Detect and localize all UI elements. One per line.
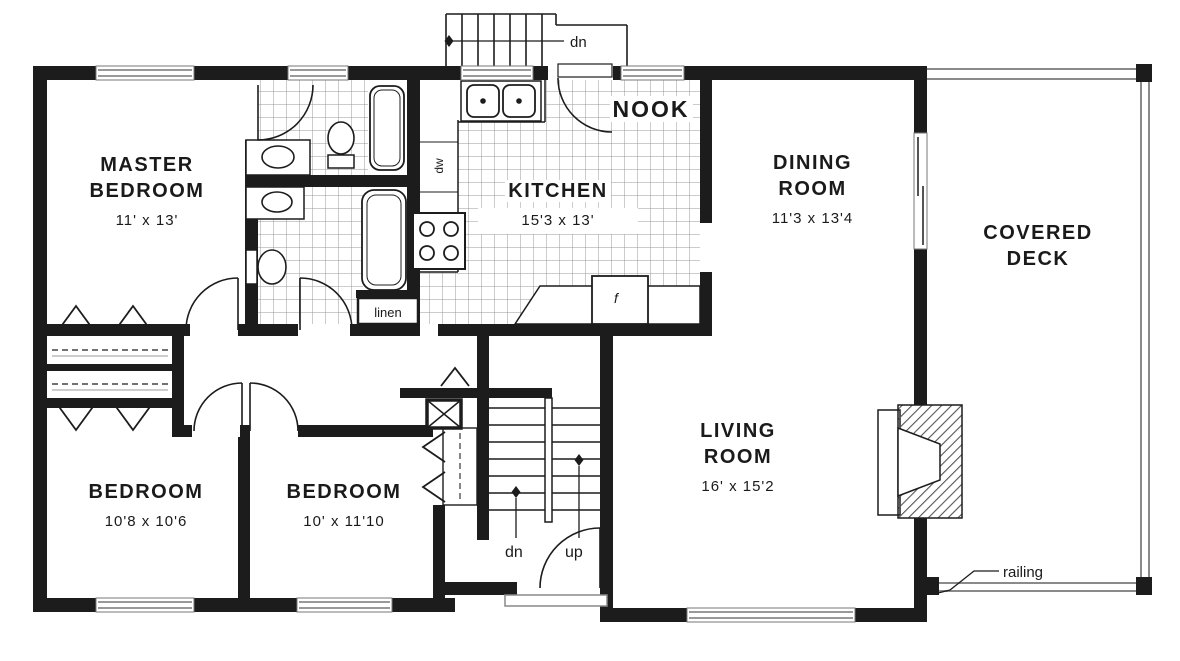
- room-label-bedroom-3: BEDROOM 10' x 11'10: [258, 479, 430, 535]
- bedroom2-door: [194, 383, 242, 431]
- room-label-bedroom-2: BEDROOM 10'8 x 10'6: [60, 479, 232, 535]
- room-name: BEDROOM: [287, 481, 402, 503]
- window: [621, 66, 684, 80]
- room-name: BEDROOM: [89, 481, 204, 503]
- patio-door: [914, 133, 927, 249]
- room-name: MASTER BEDROOM: [90, 154, 205, 202]
- ensuite-tub: [370, 86, 404, 170]
- bifold-door: [441, 368, 469, 386]
- room-size: 10' x 11'10: [258, 509, 430, 535]
- window: [297, 598, 392, 612]
- stairs-down-label: dn: [505, 544, 523, 561]
- room-name: DINING ROOM: [773, 152, 852, 200]
- room-size: 15'3 x 13': [478, 208, 638, 234]
- floor-plan: dn dn up dw f linen railing MASTER BEDRO…: [0, 0, 1180, 661]
- refrigerator: [592, 276, 648, 324]
- exterior-stairs-down-label: dn: [570, 34, 587, 51]
- room-label-master-bedroom: MASTER BEDROOM 11' x 13': [72, 152, 222, 234]
- master-bedroom-door: [186, 278, 238, 330]
- window: [288, 66, 348, 80]
- main-bath-tub: [362, 190, 406, 290]
- stair-divider-rail: [545, 398, 552, 522]
- main-bath-vanity-sink: [246, 187, 304, 219]
- stair-arrow-head: [512, 486, 521, 498]
- chimney: [427, 400, 461, 428]
- ensuite-vanity-sink: [246, 140, 310, 175]
- main-bath-toilet: [246, 250, 286, 284]
- room-label-covered-deck: COVERED DECK: [968, 220, 1108, 272]
- entry-stoop: [505, 595, 607, 606]
- window: [96, 66, 194, 80]
- ensuite-toilet: [328, 122, 354, 168]
- deck-corner-post: [1136, 64, 1152, 82]
- room-label-nook: NOOK: [596, 96, 706, 122]
- stair-arrow-head: [575, 454, 584, 466]
- window: [96, 598, 194, 612]
- floor-plan-linework: dn dn up dw f linen railing: [0, 0, 1180, 661]
- stove: [413, 213, 465, 269]
- room-name: COVERED DECK: [983, 222, 1092, 270]
- stairs-up-label: up: [565, 544, 583, 561]
- dishwasher-label: dw: [432, 158, 446, 174]
- window: [687, 608, 855, 622]
- fireplace: [878, 405, 962, 518]
- room-name: NOOK: [610, 96, 693, 122]
- linen-label: linen: [374, 305, 401, 320]
- deck-corner-post: [1136, 577, 1152, 595]
- kitchen-double-sink: [461, 81, 541, 121]
- room-size: 16' x 15'2: [668, 474, 808, 500]
- room-size: 11' x 13': [72, 208, 222, 234]
- window: [461, 66, 533, 80]
- room-name: LIVING ROOM: [700, 420, 776, 468]
- room-label-kitchen: KITCHEN 15'3 x 13': [478, 178, 638, 234]
- deck-corner-post: [925, 577, 939, 595]
- room-size: 11'3 x 13'4: [745, 206, 880, 232]
- room-label-living-room: LIVING ROOM 16' x 15'2: [668, 418, 808, 500]
- bedroom3-door: [250, 383, 298, 431]
- room-size: 10'8 x 10'6: [60, 509, 232, 535]
- railing-label: railing: [1003, 564, 1043, 581]
- room-label-dining-room: DINING ROOM 11'3 x 13'4: [745, 150, 880, 232]
- room-name: KITCHEN: [505, 180, 610, 202]
- main-stairs: [489, 398, 600, 538]
